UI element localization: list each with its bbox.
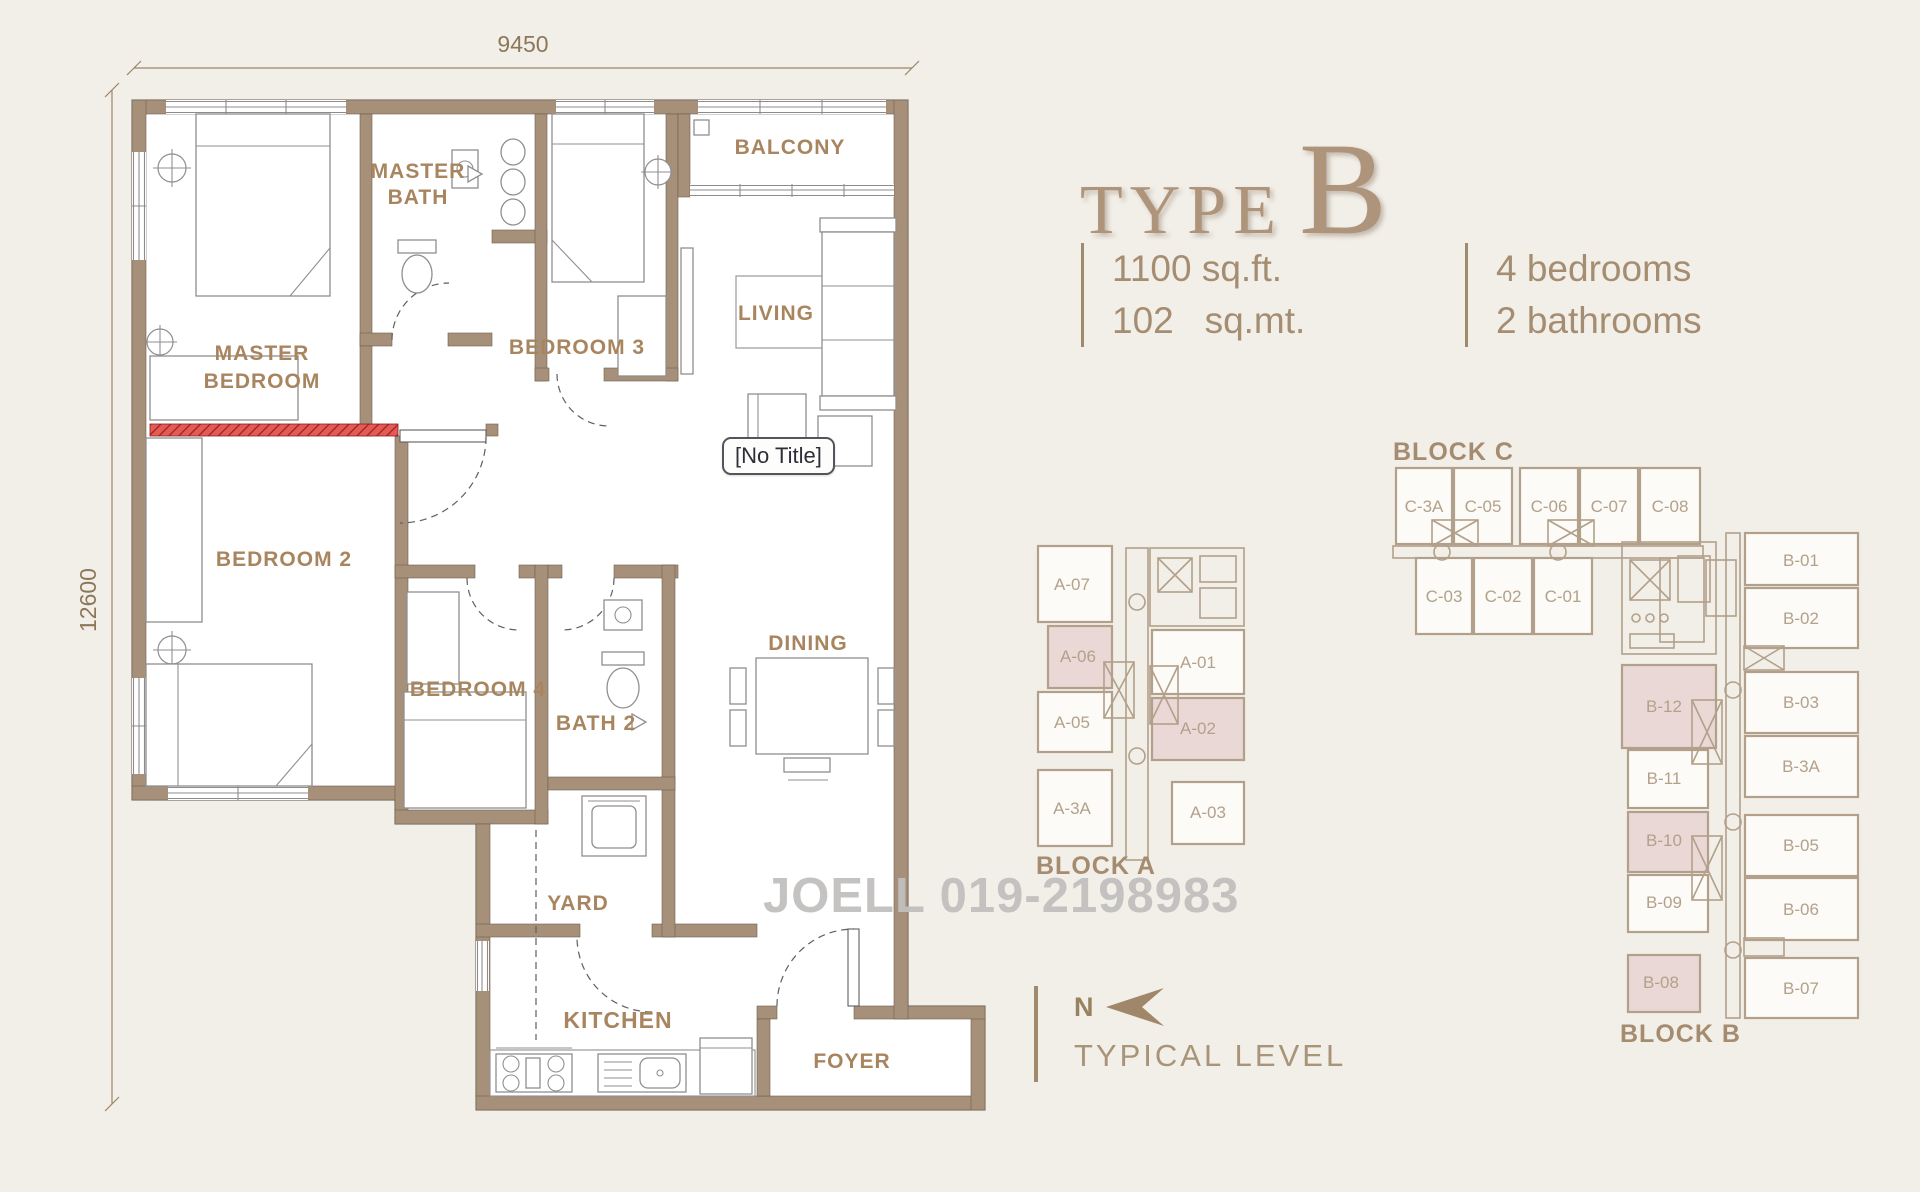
label-master-bedroom-line2: BEDROOM: [204, 370, 321, 393]
unit-b-11: B-11: [1628, 750, 1708, 808]
svg-text:A-06: A-06: [1060, 647, 1096, 666]
svg-text:B-12: B-12: [1646, 697, 1682, 716]
svg-text:C-07: C-07: [1591, 497, 1628, 516]
svg-text:B-02: B-02: [1783, 609, 1819, 628]
type-letter: B: [1299, 112, 1387, 265]
svg-text:C-3A: C-3A: [1405, 497, 1444, 516]
label-master-bedroom-line1: MASTER: [215, 342, 310, 365]
door-leaf-entry: [848, 929, 859, 1006]
type-word: TYPE: [1080, 171, 1283, 251]
svg-text:B-10: B-10: [1646, 831, 1682, 850]
unit-c-03: C-03: [1416, 558, 1472, 634]
unit-c-07: C-07: [1580, 468, 1638, 544]
unit-a-3a: A-3A: [1038, 770, 1112, 846]
unit-c-08: C-08: [1640, 468, 1700, 544]
block-b-label: BLOCK B: [1620, 1020, 1741, 1048]
keyplan-block-a: A-07 A-06 A-05 A-3A A-01 A-02 A-03 BLOCK…: [1036, 546, 1244, 880]
unit-a-01: A-01: [1152, 630, 1244, 694]
window-bedroom2-bottom: [168, 786, 308, 800]
unit-b-3a: B-3A: [1745, 736, 1858, 797]
spec-area-sqft: 1100 sq.ft.: [1112, 243, 1305, 295]
spec-area: 1100 sq.ft. 102 sq.mt.: [1081, 243, 1305, 347]
window-bedroom3-top: [556, 100, 654, 114]
unit-c-01: C-01: [1534, 558, 1592, 634]
north-arrow-icon: [1104, 986, 1166, 1028]
fridge: [700, 1038, 752, 1094]
label-master-bath-line1: MASTER: [371, 160, 466, 183]
bed-bedroom3: [552, 114, 644, 282]
sofa: [820, 218, 896, 410]
label-master-bath-line2: BATH: [388, 186, 449, 209]
svg-text:C-02: C-02: [1485, 587, 1522, 606]
spec-rooms: 4 bedrooms 2 bathrooms: [1465, 243, 1702, 347]
svg-text:B-11: B-11: [1647, 769, 1682, 788]
window-balcony-living: [690, 184, 894, 197]
window-master-bedroom-left: [132, 152, 146, 260]
svg-text:A-3A: A-3A: [1053, 799, 1091, 818]
door-leaf-master-suite: [400, 430, 486, 442]
label-bedroom4: BEDROOM 4: [410, 678, 546, 701]
unit-b-10: B-10: [1628, 812, 1708, 872]
wardrobe-bedroom4: [407, 592, 459, 684]
svg-text:B-08: B-08: [1643, 973, 1679, 992]
unit-b-01: B-01: [1745, 533, 1858, 585]
window-kitchen-left: [476, 941, 489, 991]
svg-text:A-07: A-07: [1054, 575, 1090, 594]
wardrobe-bedroom2: [146, 438, 202, 622]
label-bedroom2: BEDROOM 2: [216, 548, 352, 571]
keyplan-block-c: C-3A C-05 C-06 C-07 C-08 C-03 C-02 C-01 …: [1393, 438, 1736, 642]
unit-b-07: B-07: [1745, 958, 1858, 1018]
dimension-height-label: 12600: [75, 568, 101, 632]
unit-a-06: A-06: [1048, 626, 1112, 688]
unit-c-05: C-05: [1454, 468, 1512, 544]
unit-a-03: A-03: [1172, 782, 1244, 844]
north-divider-bar: [1034, 986, 1038, 1082]
svg-text:A-05: A-05: [1054, 713, 1090, 732]
unit-b-09: B-09: [1628, 875, 1708, 932]
label-kitchen: KITCHEN: [563, 1007, 672, 1033]
label-living: LIVING: [738, 302, 814, 325]
label-yard: YARD: [547, 892, 609, 915]
dimension-width-label: 9450: [497, 31, 548, 57]
balcony-drain: [694, 120, 709, 135]
bed-bedroom4: [404, 692, 526, 808]
spec-bathrooms: 2 bathrooms: [1496, 295, 1702, 347]
svg-text:A-02: A-02: [1180, 719, 1216, 738]
bed-bedroom2: [146, 664, 312, 786]
keyplan-block-b: B-01 B-02 B-03 B-3A B-05 B-06 B-07 B-12 …: [1620, 533, 1858, 1048]
unit-c-02: C-02: [1474, 558, 1532, 634]
unit-a-05: A-05: [1038, 692, 1112, 752]
label-bath2: BATH 2: [556, 712, 636, 735]
typical-level-label: TYPICAL LEVEL: [1074, 1038, 1346, 1074]
spec-area-sqmt: 102 sq.mt.: [1112, 295, 1305, 347]
window-balcony-top: [698, 100, 886, 114]
svg-text:A-01: A-01: [1180, 653, 1216, 672]
svg-text:C-08: C-08: [1652, 497, 1689, 516]
no-title-tooltip: [No Title]: [722, 437, 835, 475]
svg-text:B-09: B-09: [1646, 893, 1682, 912]
floor-plan-canvas: 9450 12600: [0, 0, 1920, 1192]
window-master-bedroom-top: [166, 100, 346, 114]
label-dining: DINING: [768, 632, 848, 655]
agent-watermark: JOELL 019-2198983: [763, 868, 1239, 924]
block-c-label: BLOCK C: [1393, 438, 1514, 466]
unit-b-06: B-06: [1745, 878, 1858, 940]
svg-text:B-3A: B-3A: [1782, 757, 1820, 776]
unit-b-05: B-05: [1745, 815, 1858, 876]
unit-a-07: A-07: [1038, 546, 1112, 622]
label-balcony: BALCONY: [735, 136, 846, 159]
sink-bath2: [604, 600, 642, 630]
label-bedroom3: BEDROOM 3: [509, 336, 645, 359]
north-letter: N: [1074, 992, 1094, 1023]
svg-text:A-03: A-03: [1190, 803, 1226, 822]
heater-niche: [501, 139, 525, 225]
kitchen-sink: [598, 1054, 686, 1092]
svg-text:C-06: C-06: [1531, 497, 1568, 516]
svg-text:C-05: C-05: [1465, 497, 1502, 516]
floorplan-page: { "title": { "word": "TYPE", "letter": "…: [0, 0, 1920, 1192]
svg-text:C-01: C-01: [1545, 587, 1582, 606]
tv-console: [681, 248, 693, 374]
window-bedroom2-left: [132, 678, 146, 774]
unit-b-02: B-02: [1745, 588, 1858, 648]
svg-text:C-03: C-03: [1426, 587, 1463, 606]
bed-master: [196, 114, 330, 296]
svg-text:B-01: B-01: [1783, 551, 1819, 570]
unit-a-02: A-02: [1152, 698, 1244, 760]
highlighted-red-wall: [150, 424, 398, 436]
yard-sink: [582, 796, 646, 856]
label-foyer: FOYER: [813, 1050, 890, 1073]
unit-b-08: B-08: [1628, 955, 1700, 1012]
svg-text:B-05: B-05: [1783, 836, 1819, 855]
north-indicator: N TYPICAL LEVEL: [1034, 986, 1346, 1082]
svg-text:B-07: B-07: [1783, 979, 1819, 998]
svg-text:B-06: B-06: [1783, 900, 1819, 919]
unit-c-3a: C-3A: [1396, 468, 1452, 544]
unit-b-12: B-12: [1622, 665, 1716, 748]
spec-bedrooms: 4 bedrooms: [1496, 243, 1702, 295]
unit-b-03: B-03: [1745, 672, 1858, 733]
svg-text:B-03: B-03: [1783, 693, 1819, 712]
